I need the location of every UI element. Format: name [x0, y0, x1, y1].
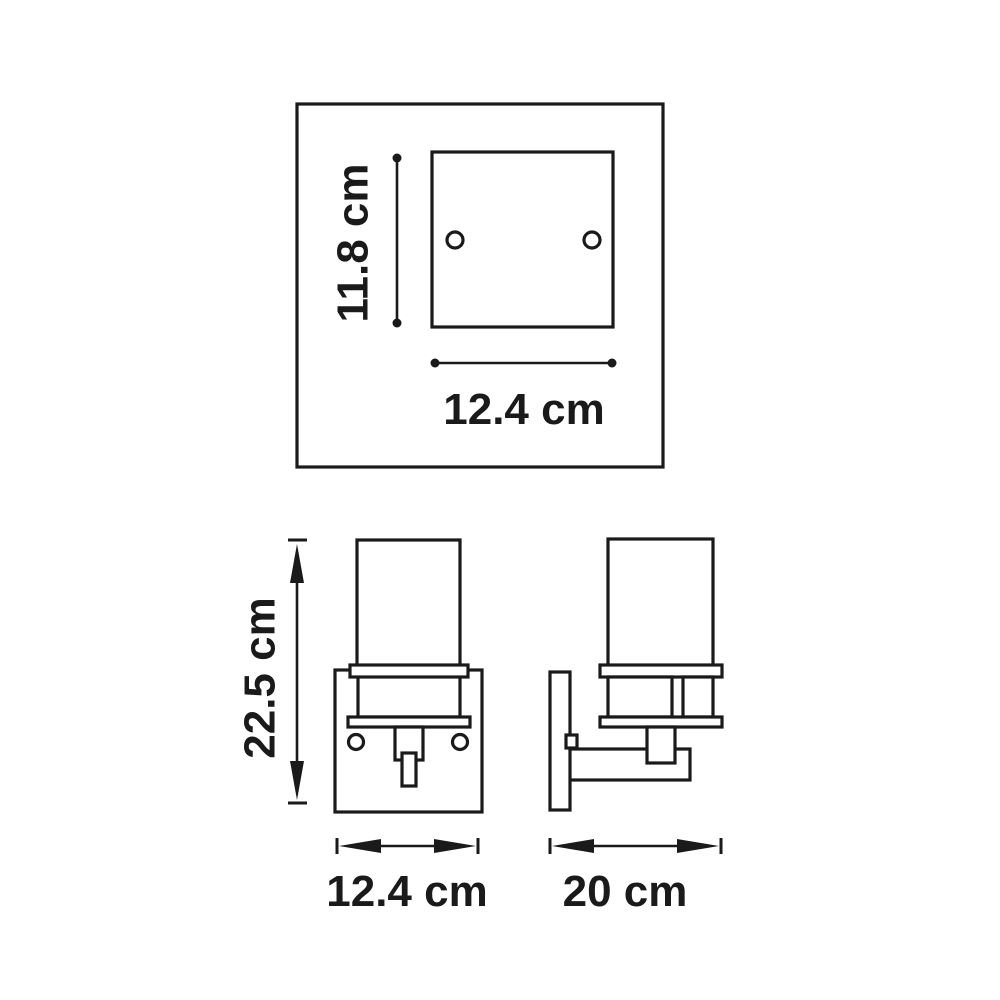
mounting-hole-right: [584, 232, 600, 248]
dimension-dot: [393, 154, 402, 163]
stem-tip-front: [402, 753, 416, 786]
side-view: 20 cm: [550, 539, 722, 916]
shade-front: [357, 540, 460, 667]
dimension-dot: [393, 319, 402, 328]
stem-side: [647, 727, 675, 763]
support-side: [683, 677, 713, 717]
dimension-dot: [608, 359, 617, 368]
fixture-depth-dimension: 20 cm: [550, 838, 721, 916]
plate-height-label: 11.8 cm: [328, 163, 377, 322]
fixture-width-dimension: 12.4 cm: [326, 838, 487, 916]
collar-front: [350, 665, 468, 677]
front-view: 22.5 cm 12.4 cm: [235, 540, 487, 916]
fixture-height-dimension: 22.5 cm: [235, 540, 307, 803]
fixture-depth-label: 20 cm: [563, 867, 688, 916]
arrow-down: [290, 761, 304, 800]
plate-width-label: 12.4 cm: [443, 385, 604, 434]
shade-lower-side: [608, 677, 672, 717]
diagram-svg: 11.8 cm 12.4 cm: [0, 0, 1000, 1000]
arrow-left: [552, 839, 594, 853]
fixture-width-label: 12.4 cm: [326, 867, 487, 916]
arrow-left: [339, 839, 381, 853]
collar-side: [600, 665, 722, 677]
bracket-knob-side: [566, 735, 577, 748]
arrow-right: [434, 839, 476, 853]
shade-lower-front: [358, 676, 460, 717]
screw-right: [453, 735, 468, 750]
arrow-right: [677, 839, 719, 853]
arrow-up: [290, 544, 304, 583]
mounting-hole-left: [447, 232, 463, 248]
fixture-height-label: 22.5 cm: [235, 597, 284, 758]
dimension-diagram: 11.8 cm 12.4 cm: [0, 0, 1000, 1000]
screw-left: [349, 735, 364, 750]
shade-side: [608, 539, 713, 666]
top-view: 11.8 cm 12.4 cm: [297, 104, 663, 467]
dimension-dot: [431, 359, 440, 368]
